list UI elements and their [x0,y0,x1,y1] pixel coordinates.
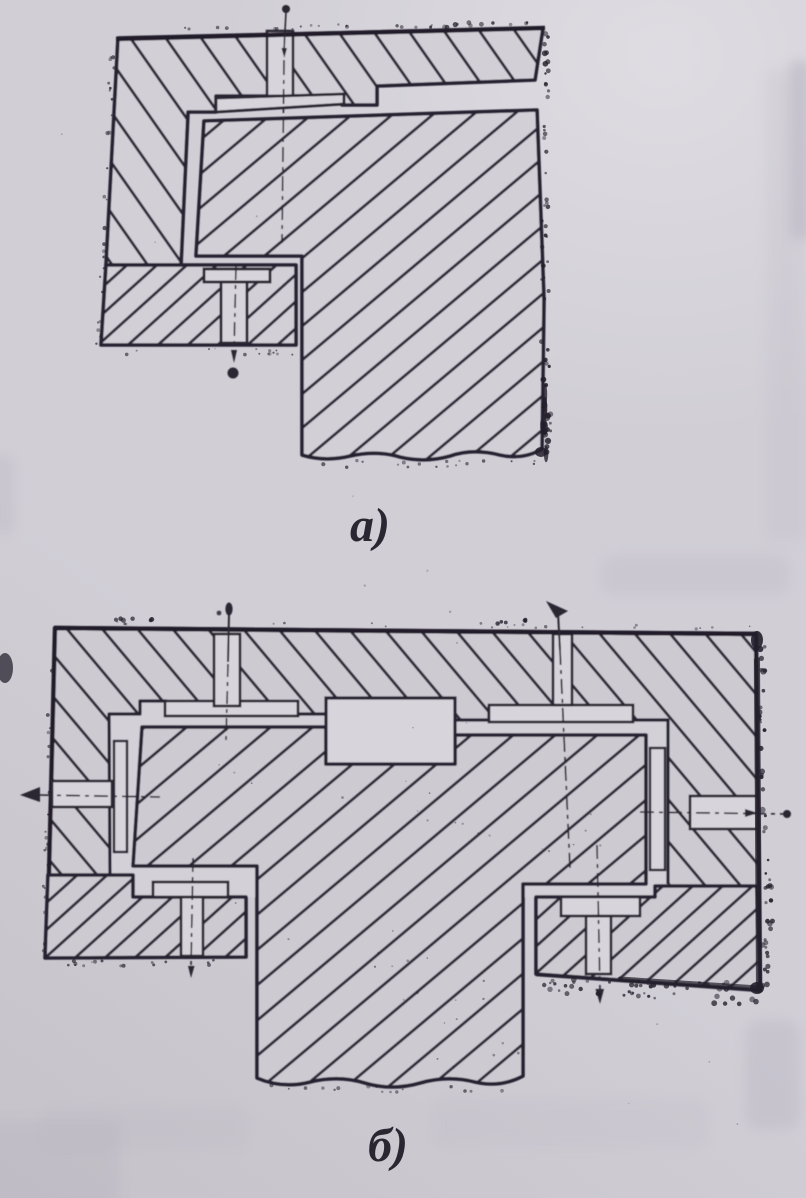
svg-text:б): б) [368,1119,408,1172]
svg-text:а): а) [350,499,390,552]
